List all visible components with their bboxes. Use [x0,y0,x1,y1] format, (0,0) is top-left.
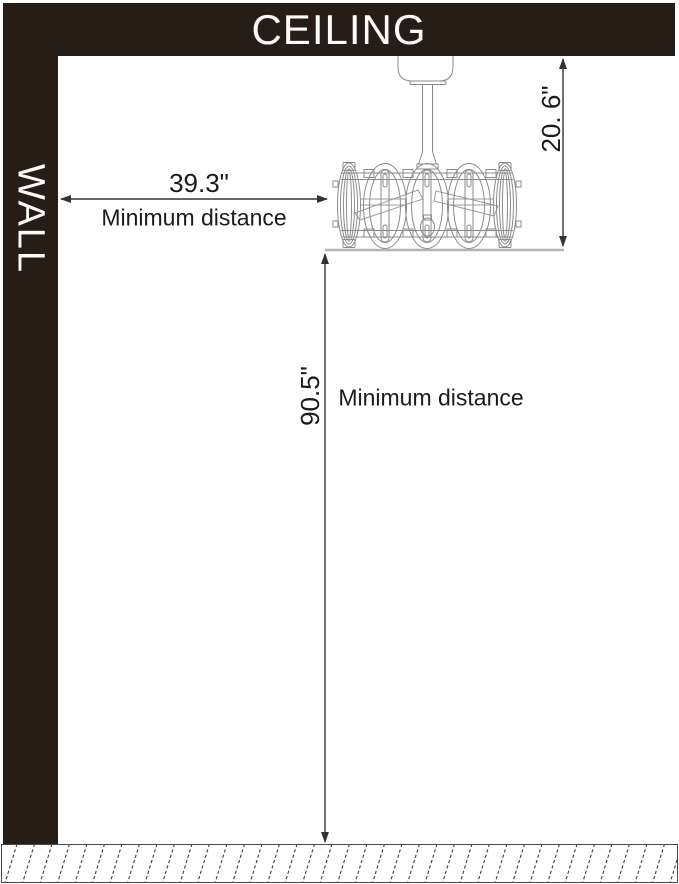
floor-hatch-fill [2,845,678,883]
dimension-lines [0,0,679,884]
ceiling-clearance-value: 20. 6" [538,85,564,152]
floor-strip [1,844,678,883]
floor-clearance-value: 90.5" [297,366,323,426]
installation-clearance-diagram: CEILING WALL [0,0,679,884]
wall-clearance-label: Minimum distance [101,207,286,230]
floor-clearance-label: Minimum distance [338,387,523,410]
wall-clearance-value: 39.3" [169,170,229,196]
